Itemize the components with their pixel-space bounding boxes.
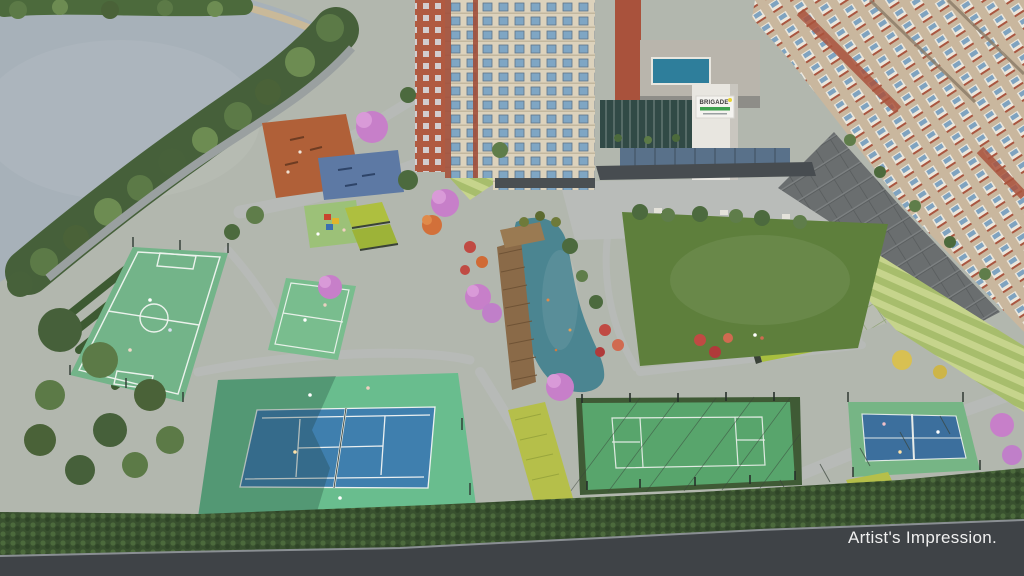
tree-shadow (198, 376, 336, 517)
caption-artists-impression: Artist's Impression. (848, 528, 997, 547)
rooftop-pool (652, 58, 710, 84)
project-sign: BRIGADE (696, 96, 734, 118)
artists-impression-render: BRIGADE (0, 0, 1024, 576)
caged-practice-court (570, 392, 802, 495)
sign-brand-text: BRIGADE (699, 100, 728, 106)
sign-logo-dot (728, 98, 732, 102)
sign-accent-bar (700, 107, 730, 111)
fitness-pad (318, 150, 404, 200)
tennis-court (198, 373, 477, 517)
